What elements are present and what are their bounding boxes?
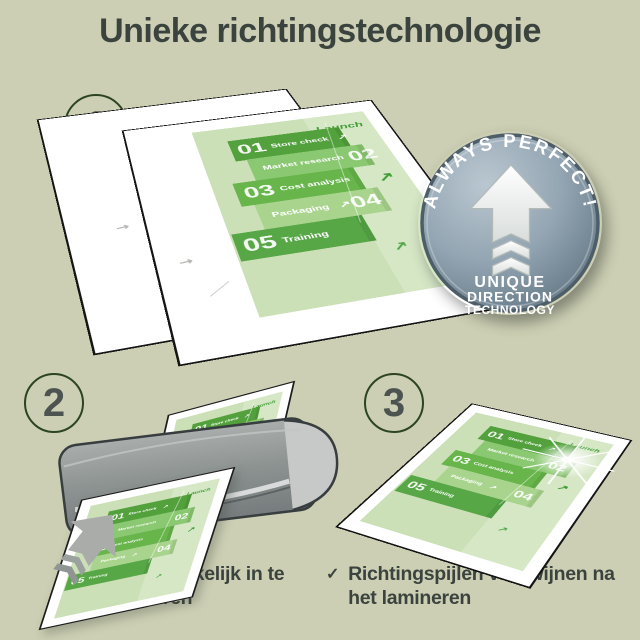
pouch-print-mark xyxy=(209,281,228,296)
direction-arrow-icon: ↗ xyxy=(335,132,350,141)
band-number: 02 xyxy=(345,147,381,163)
direction-arrow-icon: ↗ xyxy=(162,503,169,509)
band-number: 05 xyxy=(404,480,429,493)
badge-line-technology: TECHNOLOGY xyxy=(465,303,555,315)
direction-arrow-icon: ↗ xyxy=(186,525,196,534)
direction-arrow-icon: ↗ xyxy=(495,524,510,534)
pouch-direction-mark-icon: ↗ xyxy=(113,220,134,233)
always-perfect-badge: ALWAYS PERFECT! UNIQUE DIRECTION TECHNOL… xyxy=(418,131,602,315)
direction-arrow-icon: ↗ xyxy=(389,238,412,253)
band-label: Store check xyxy=(269,136,329,149)
band-label: Training xyxy=(427,488,455,498)
band-label: Training xyxy=(281,230,331,245)
band-number: 01 xyxy=(485,430,507,441)
band-number: 03 xyxy=(241,183,278,202)
feed-direction-arrow-icon xyxy=(34,500,138,600)
step-3-number: 3 xyxy=(364,373,424,433)
badge-graphic: ALWAYS PERFECT! UNIQUE DIRECTION TECHNOL… xyxy=(418,131,602,315)
band-number: 02 xyxy=(173,512,189,523)
band-number: 04 xyxy=(156,543,172,554)
page-title: Unieke richtingstechnologie xyxy=(0,12,640,51)
product-infographic: Unieke richtingstechnologie 1 ↗ ↗ Launch… xyxy=(0,0,640,640)
band-label: Cost analysis xyxy=(278,176,351,192)
pouch-direction-mark-icon: ↗ xyxy=(175,255,197,269)
band-number: 05 xyxy=(240,233,280,255)
band-number: 03 xyxy=(449,454,473,466)
check-icon: ✓ xyxy=(326,565,339,611)
laminated-document-result: Launch 01 Store check ↗ Market research … xyxy=(335,403,632,589)
direction-arrow-icon: ↗ xyxy=(155,572,163,579)
band-number: 01 xyxy=(235,141,269,157)
direction-arrow-icon: ↗ xyxy=(487,484,499,491)
direction-arrow-icon: ↗ xyxy=(373,169,398,184)
band-label: Packaging xyxy=(449,474,483,486)
band-label: Packaging xyxy=(270,203,330,218)
